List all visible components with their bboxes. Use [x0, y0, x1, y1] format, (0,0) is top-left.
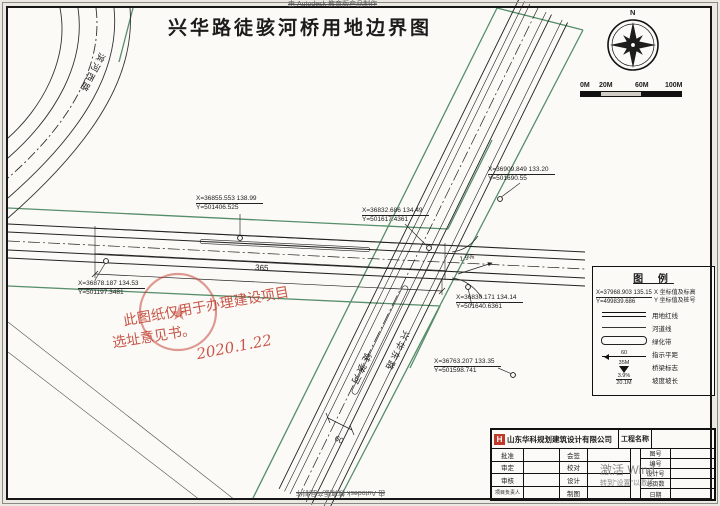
single-line-symbol [602, 327, 646, 328]
sig-cell [588, 487, 630, 500]
coord-4-y: Y=501197.3481 [78, 289, 124, 296]
coord-label-6: X=36763.207 133.35 Y=501598.741 [434, 358, 501, 375]
coord-5-y: Y=501640.6361 [456, 303, 502, 310]
legend-box: 图 例 X=37968.903 135.15 Y=499839.686 X 坐标… [592, 266, 715, 396]
drawing-sheet-page: 365 60 1.9% [0, 0, 720, 506]
legend-row-bridge-mark: 35M 桥梁标志 [593, 360, 714, 373]
label-verify: 审定 [492, 462, 524, 475]
coord-2-x: X=36832.686 134.49 [362, 207, 429, 216]
scale-tick-100: 100M [665, 82, 683, 89]
legend-label-river: 河道线 [652, 323, 711, 333]
coord-3-x: X=36909.849 133.20 [488, 166, 555, 175]
legend-title: 图 例 [593, 270, 714, 285]
label-proofread: 校对 [560, 462, 588, 475]
coord-label-3: X=36909.849 133.20 Y=501690.55 [488, 166, 555, 183]
windows-watermark-line2: 转到"设置"以激活。 [600, 478, 661, 488]
coord-label-1: X=36855.553 138.99 Y=501406.525 [196, 195, 263, 212]
sig-cell [524, 487, 560, 500]
legend-row-distance: 60 指示平距 [593, 347, 714, 360]
label-drawing-no: 图号 [641, 449, 671, 459]
triangle-symbol [619, 366, 629, 373]
band-width-dimension: 60 [326, 413, 354, 446]
coord-6-x: X=36763.207 133.35 [434, 358, 501, 367]
legend-label-redline: 用地红线 [652, 310, 711, 320]
scale-tick-20: 20M [599, 82, 613, 89]
legend-label-distance: 指示平距 [652, 349, 711, 359]
legend-sample-y-label: Y 坐标值及桩号 [654, 298, 696, 304]
legend-row-redline: 用地红线 [593, 308, 714, 321]
value-drawing-no [671, 449, 714, 459]
legend-coord-sample: X=37968.903 135.15 Y=499839.686 X 坐标值及标高… [596, 289, 712, 306]
value-total-pages [671, 479, 714, 489]
slope-symbol: 3.9% 20.1M [616, 373, 631, 386]
coord-1-y: Y=501406.525 [196, 204, 238, 211]
coord-1-x: X=36855.553 138.99 [196, 195, 263, 204]
scale-bar: 0M 20M 60M 100M [580, 82, 682, 97]
windows-activation-watermark: 激活 Wind 转到"设置"以激活。 [600, 461, 661, 488]
legend-slope-percent: 3.9% [616, 373, 631, 380]
sig-cell [524, 474, 560, 487]
arrow-symbol [602, 356, 646, 357]
stadium-symbol [601, 336, 647, 345]
legend-row-greenbelt: 绿化带 [593, 334, 714, 347]
band-width-label: 60 [333, 434, 345, 446]
bridge-length-label: 365 [255, 263, 269, 273]
coord-label-4: X=36878.187 134.53 Y=501197.3481 [78, 280, 145, 297]
windows-watermark-line1: 激活 Wind [600, 461, 661, 478]
label-project-lead: 项目负责人 [492, 487, 524, 500]
coord-6-y: Y=501598.741 [434, 367, 476, 374]
value-design-no [671, 469, 714, 479]
label-countersign: 会签 [560, 449, 588, 462]
coord-label-2: X=36832.686 134.49 Y=501617.4361 [362, 207, 429, 224]
autodesk-watermark-top: 由 Autodesk 教育版产品制作 [288, 0, 377, 9]
legend-label-greenbelt: 绿化带 [652, 336, 711, 346]
north-label: N [630, 8, 635, 17]
label-audit: 审核 [492, 474, 524, 487]
autodesk-watermark-bottom: 由 Autodesk 教育版产品制作 [296, 488, 385, 498]
legend-slope-length: 20.1M [616, 380, 631, 386]
sig-cell [524, 462, 560, 475]
project-name-value [652, 430, 714, 448]
coord-label-5: X=36830.171 134.14 Y=501640.6361 [456, 294, 523, 311]
scale-tick-0: 0M [580, 82, 590, 89]
value-date [671, 489, 714, 499]
slope-label: 1.9% [459, 253, 475, 263]
xinghua-road [8, 224, 585, 286]
double-line-symbol [602, 312, 646, 317]
legend-row-slope: 3.9% 20.1M 坡度坡长 [593, 373, 714, 386]
project-name-label: 工程名称 [619, 430, 652, 448]
scale-tick-60: 60M [635, 82, 649, 89]
scale-bar-graphic [580, 91, 682, 97]
legend-label-slope: 坡度坡长 [652, 375, 711, 385]
compass-rose: N [608, 8, 658, 70]
label-draft: 制图 [560, 487, 588, 500]
binhe-west-road [8, 8, 131, 218]
sig-cell [588, 449, 630, 462]
legend-sample-x: X=37968.903 135.15 [596, 289, 652, 298]
legend-sample-x-label: X 坐标值及标高 [654, 290, 696, 296]
coord-5-x: X=36830.171 134.14 [456, 294, 523, 303]
river-label-tuhai: 徒骇河 [348, 351, 374, 388]
coord-3-y: Y=501690.55 [488, 175, 527, 182]
boundary-point-markers [104, 197, 516, 378]
legend-sample-y: Y=499839.686 [596, 299, 635, 305]
label-date: 日期 [641, 489, 671, 499]
drawing-title: 兴华路徒骇河桥用地边界图 [168, 13, 488, 40]
legend-label-bridge-mark: 桥梁标志 [652, 362, 711, 372]
company-name: 山东华科规划建筑设计有限公司 [507, 434, 612, 445]
value-serial-no [671, 459, 714, 469]
label-design: 设计 [560, 474, 588, 487]
sig-cell [524, 449, 560, 462]
label-approve: 批准 [492, 449, 524, 462]
coord-2-y: Y=501617.4361 [362, 216, 408, 223]
coord-4-x: X=36878.187 134.53 [78, 280, 145, 289]
legend-row-river: 河道线 [593, 321, 714, 334]
company-logo: H [494, 434, 505, 445]
